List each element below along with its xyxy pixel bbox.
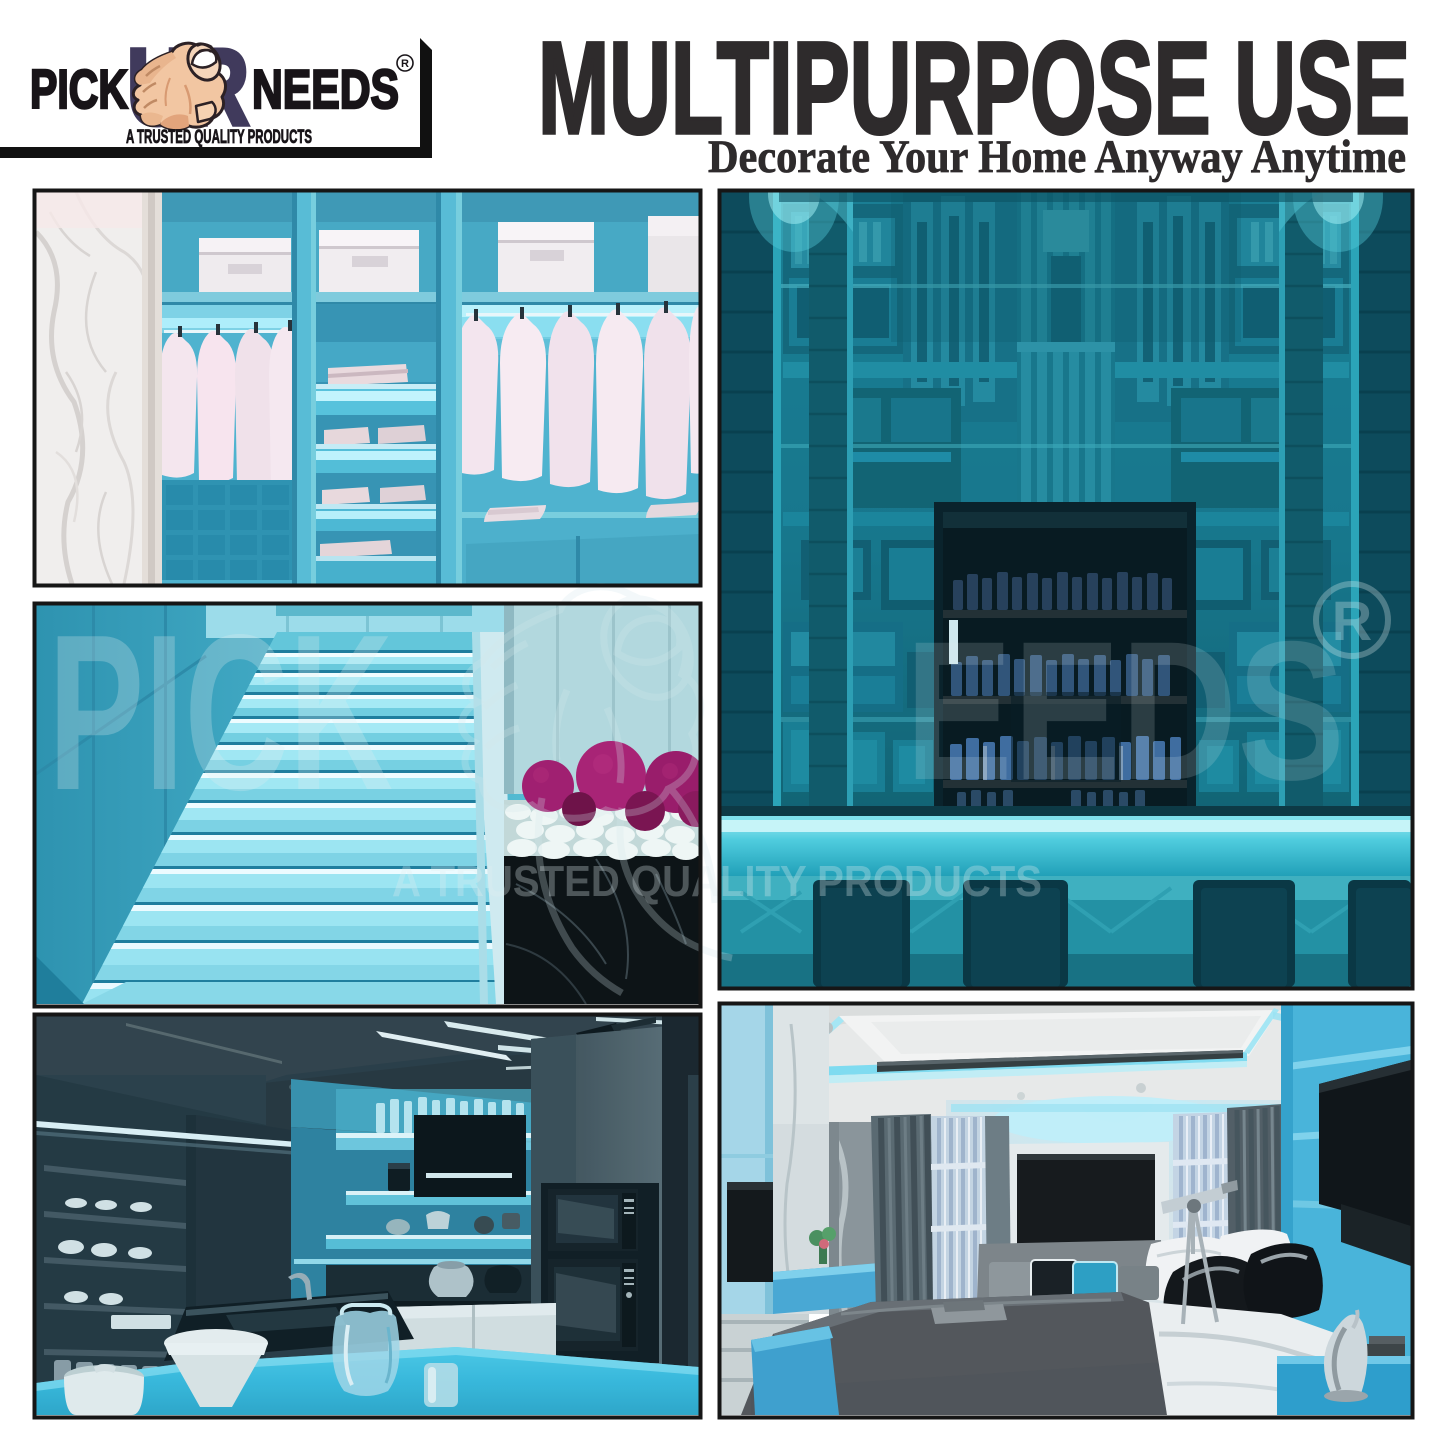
svg-text:PICK: PICK	[30, 58, 128, 120]
svg-text:NEEDS: NEEDS	[252, 58, 399, 120]
svg-text:R: R	[1332, 589, 1372, 652]
svg-text:A TRUSTED QUALITY PRODUCTS: A TRUSTED QUALITY PRODUCTS	[126, 127, 312, 148]
svg-text:PICK: PICK	[48, 589, 393, 837]
svg-text:A TRUSTED QUALITY PRODUCTS: A TRUSTED QUALITY PRODUCTS	[392, 857, 1042, 906]
svg-text:EEDS: EEDS	[905, 600, 1345, 821]
svg-text:R: R	[401, 58, 409, 70]
svg-text:Decorate Your Home Anyway Anyt: Decorate Your Home Anyway Anytime	[708, 131, 1406, 183]
